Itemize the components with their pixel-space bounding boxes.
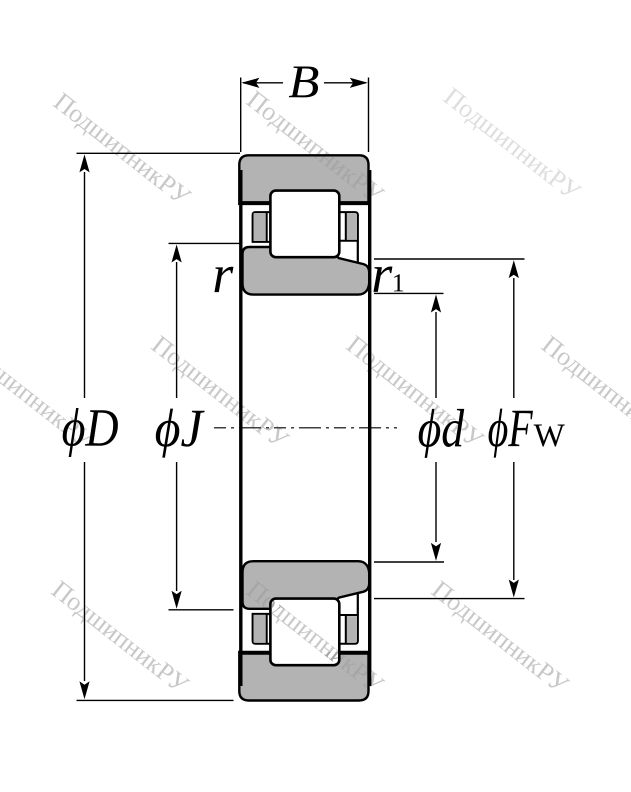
svg-text:r: r	[212, 244, 234, 304]
svg-text:B: B	[288, 56, 319, 108]
svg-text:W: W	[534, 418, 566, 454]
svg-text:1: 1	[392, 268, 405, 297]
svg-text:ϕJ: ϕJ	[155, 398, 206, 458]
svg-text:r: r	[371, 244, 393, 304]
svg-text:ϕF: ϕF	[488, 398, 534, 458]
